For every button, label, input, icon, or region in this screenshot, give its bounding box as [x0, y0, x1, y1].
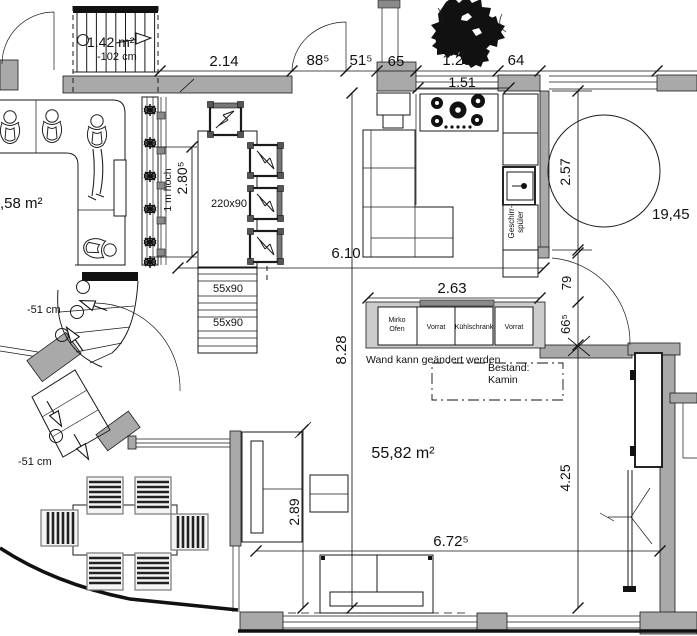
plant-icon [144, 104, 156, 116]
existing-label-1: Bestand: [488, 362, 529, 374]
person-3 [87, 115, 106, 148]
unit-oven-label-2: Ofen [389, 326, 404, 333]
outdoor-chair[interactable] [87, 553, 123, 590]
dim-top-5: 1.25 [442, 52, 471, 69]
floor-plan-page: 2.14 88⁵ 51⁵ 65 1.25 64 1.51 1.42 m² -10… [0, 0, 697, 636]
plant-icon [144, 170, 156, 182]
unit-oven-label-1: Mirko [388, 317, 405, 324]
outdoor-chair[interactable] [135, 477, 171, 514]
dim-stove-window: 1.51 [448, 74, 475, 90]
sideboard-size-bottom: 55x90 [213, 317, 243, 329]
plant-icon [144, 203, 156, 215]
dim-bottom-width: 6.72⁵ [433, 533, 468, 550]
dim-right-height: 4.25 [557, 464, 573, 491]
dim-door-right: 79 [559, 276, 574, 290]
unit-fridge-label: Kühlschrank [455, 324, 494, 331]
person-4 [83, 237, 118, 260]
wall-change-note: Wand kann geändert werden [366, 354, 501, 366]
text-layer: 2.14 88⁵ 51⁵ 65 1.25 64 1.51 1.42 m² -10… [0, 34, 690, 550]
dining-chair[interactable] [248, 186, 284, 222]
outdoor-chair[interactable] [87, 477, 123, 514]
dim-top-3: 51⁵ [350, 52, 373, 69]
person-1 [0, 111, 19, 144]
area-living: 55,82 m² [371, 445, 435, 462]
dim-room-height: 8.28 [333, 335, 350, 364]
railing-height-label: 1 m hoch [162, 168, 174, 211]
plant-icon [144, 236, 156, 248]
stair-direction-arrow [136, 33, 151, 44]
dim-top-2: 88⁵ [307, 52, 330, 69]
area-right-room: 19,45 [652, 206, 690, 223]
floor-plan-canvas: 2.14 88⁵ 51⁵ 65 1.25 64 1.51 1.42 m² -10… [0, 0, 697, 636]
sideboard-size-top: 55x90 [213, 283, 243, 295]
dining-chair[interactable] [208, 102, 244, 138]
outdoor-chair[interactable] [135, 553, 171, 590]
door-stair-bottom[interactable] [95, 303, 180, 391]
outdoor-set [41, 477, 208, 590]
dim-couch-side: 2.89 [286, 498, 302, 525]
dishwasher-label-2: spüler [516, 211, 525, 233]
dim-wall-right: 66⁵ [558, 314, 573, 334]
outdoor-chair[interactable] [171, 514, 208, 550]
stairwell-offset: -102 cm [97, 51, 137, 63]
table-size-label: 220x90 [211, 198, 247, 210]
side-table[interactable] [310, 475, 348, 512]
stove[interactable] [416, 94, 498, 205]
dining-chair[interactable] [248, 143, 284, 179]
tall-cupboard[interactable] [635, 353, 662, 467]
plant-icon [144, 256, 156, 268]
sideboard-group [198, 268, 257, 353]
dim-top-4: 65 [388, 53, 405, 70]
folding-door[interactable] [628, 470, 632, 588]
right-cupboard-group [600, 353, 662, 592]
unit-pantry-label-1: Vorrat [427, 324, 446, 331]
person-2 [42, 110, 61, 143]
dining-chair[interactable] [248, 229, 284, 265]
step-offset-upper: -51 cm [27, 304, 61, 316]
dim-top-6: 64 [508, 52, 525, 69]
existing-label-2: Kamin [488, 374, 518, 386]
kitchen-column [503, 94, 538, 277]
outdoor-chair[interactable] [41, 510, 78, 546]
dim-railing: 2.80⁵ [174, 161, 190, 194]
dim-room-width: 6.10 [331, 245, 360, 262]
dining-table-group [198, 102, 284, 268]
area-stairwell: 1.42 m² [87, 34, 135, 50]
lounge-group [242, 432, 470, 613]
dim-right-top: 2.57 [557, 158, 573, 185]
step-offset-lower: -51 cm [18, 456, 52, 468]
dim-cabinet-width: 2.63 [437, 280, 466, 297]
dishwasher-label-1: Geschirr- [507, 205, 516, 238]
faucet-icon [521, 183, 527, 189]
dim-top-1: 2.14 [209, 53, 238, 70]
bench-seating [0, 100, 126, 265]
area-terrace: ,58 m² [0, 195, 43, 212]
unit-pantry-label-2: Vorrat [505, 324, 524, 331]
